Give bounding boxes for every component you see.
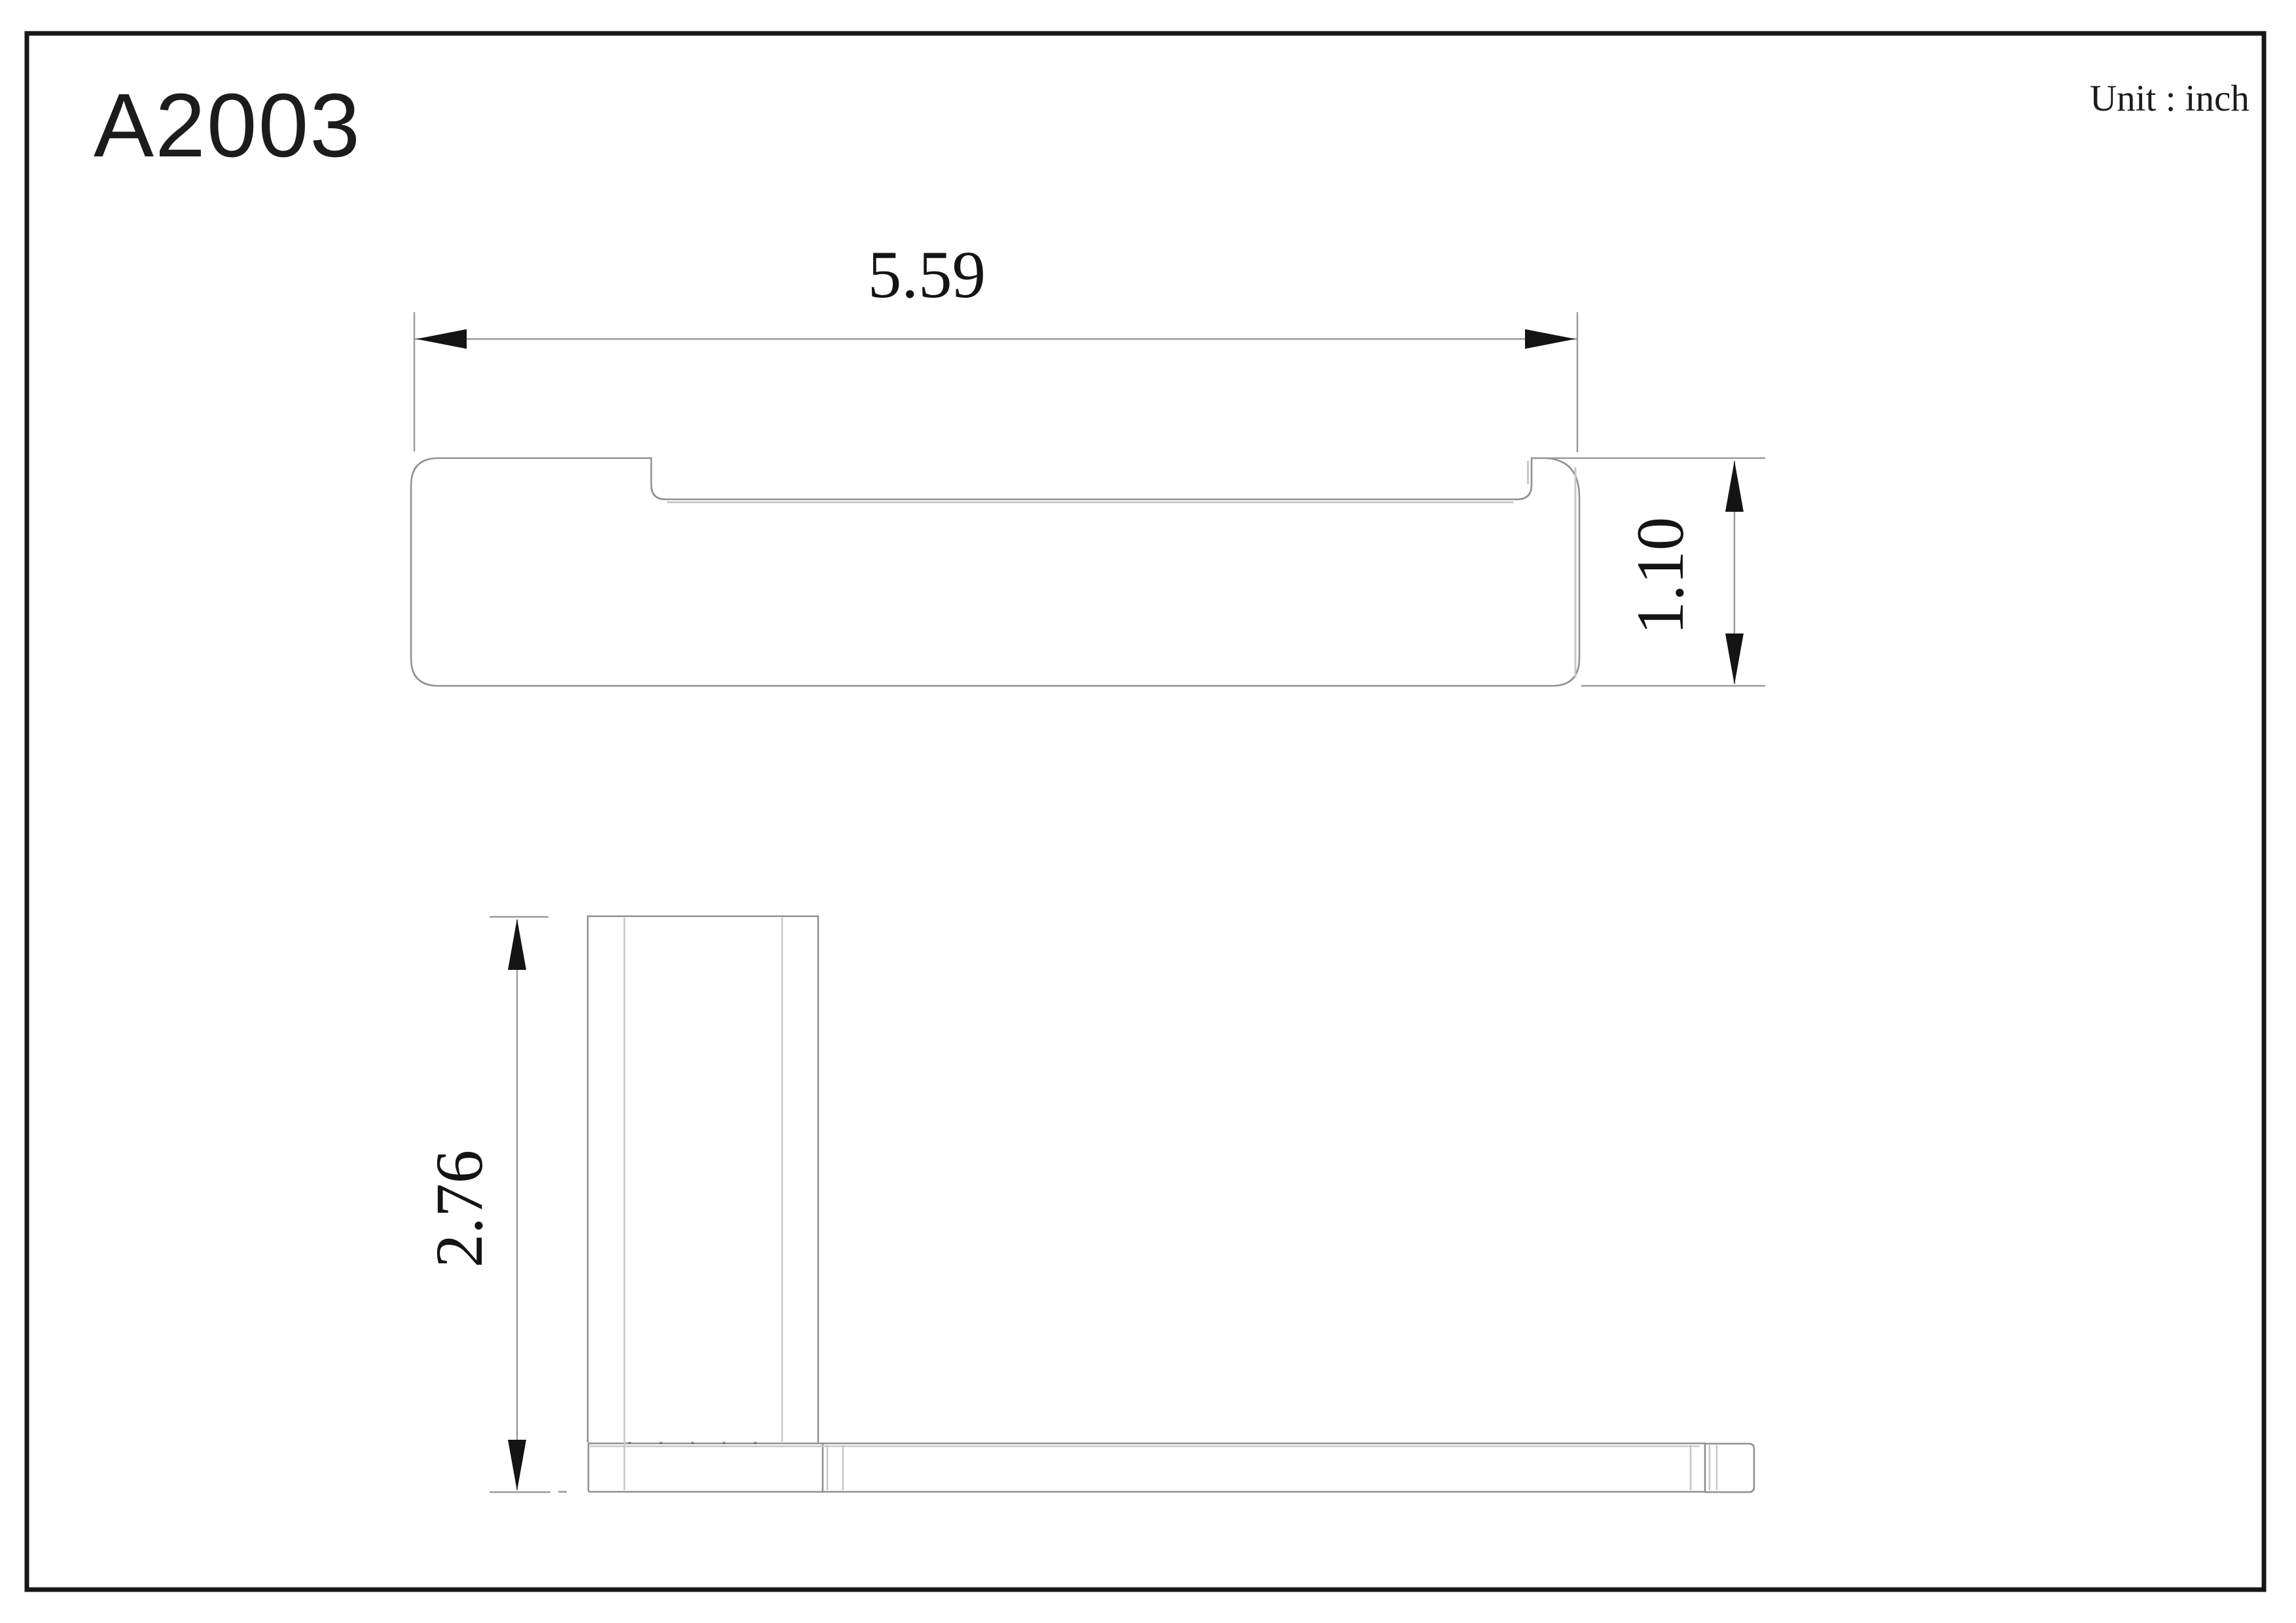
dimension-value-top-width: 5.59: [868, 236, 986, 313]
side-view-arm-outline: [588, 1444, 1706, 1492]
dim-559-arrow-left: [416, 329, 467, 349]
side-view: [588, 916, 1754, 1492]
dim-559-arrow-right: [1525, 329, 1575, 349]
dim-559-extension-lines: [414, 312, 1577, 452]
part-number: A2003: [94, 79, 361, 173]
dimension-top-width: [414, 312, 1577, 452]
dim-110-arrow-top: [1725, 461, 1744, 512]
drawing-sheet: A2003 Unit : inch 5.59 1.10 2.76: [0, 0, 2296, 1623]
dimension-value-top-height: 1.10: [1622, 517, 1699, 635]
dimension-side-height: [490, 917, 567, 1492]
unit-label: Unit : inch: [2090, 77, 2250, 120]
dim-276-arrow-bottom: [508, 1440, 526, 1491]
top-view-outline: [411, 458, 1579, 686]
dim-276-extension-lines: [490, 917, 567, 1492]
dim-276-arrow-top: [508, 919, 526, 970]
top-view: [411, 458, 1579, 686]
top-view-tangent-lines: [667, 461, 1575, 678]
dim-110-arrow-bottom: [1725, 633, 1744, 685]
side-view-post-outline: [588, 916, 818, 1442]
dimension-value-side-height: 2.76: [421, 1150, 498, 1268]
sheet-border: [27, 33, 2264, 1590]
side-view-arm-endcap: [1705, 1444, 1754, 1492]
side-view-tangent-lines: [590, 918, 1717, 1490]
drawing-geometry: [0, 0, 2296, 1623]
